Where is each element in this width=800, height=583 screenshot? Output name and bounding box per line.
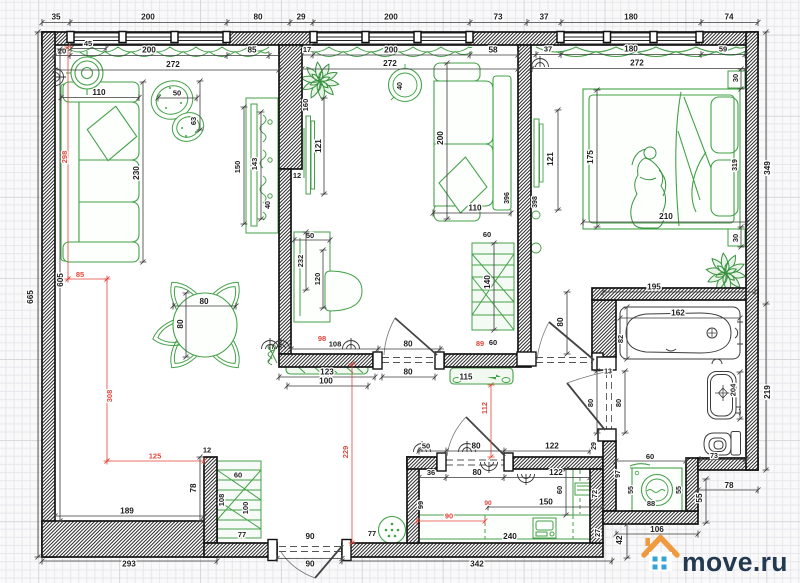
svg-text:108: 108	[329, 340, 342, 349]
svg-text:230: 230	[132, 166, 141, 180]
svg-text:298: 298	[60, 151, 69, 164]
svg-text:342: 342	[470, 560, 484, 569]
svg-text:80: 80	[403, 340, 413, 349]
svg-text:121: 121	[546, 152, 555, 166]
svg-text:80: 80	[176, 319, 185, 329]
svg-text:85: 85	[247, 46, 257, 55]
svg-text:55: 55	[628, 486, 635, 494]
svg-text:272: 272	[630, 59, 644, 68]
svg-text:115: 115	[460, 373, 473, 382]
svg-text:219: 219	[763, 385, 772, 399]
svg-text:98: 98	[318, 334, 326, 343]
svg-text:106: 106	[650, 525, 664, 534]
svg-text:272: 272	[166, 60, 180, 69]
svg-text:112: 112	[480, 402, 489, 414]
svg-text:123: 123	[320, 368, 334, 377]
svg-text:229: 229	[341, 446, 350, 459]
svg-text:189: 189	[120, 507, 134, 516]
svg-text:27: 27	[595, 529, 602, 537]
svg-text:121: 121	[314, 139, 323, 153]
svg-text:29: 29	[296, 13, 306, 22]
svg-text:120: 120	[313, 273, 322, 286]
svg-text:100: 100	[241, 502, 250, 515]
svg-text:58: 58	[488, 46, 498, 55]
svg-text:605: 605	[56, 273, 65, 287]
svg-text:110: 110	[468, 204, 482, 213]
svg-text:12: 12	[293, 171, 301, 180]
svg-text:308: 308	[105, 390, 114, 403]
svg-text:398: 398	[532, 196, 539, 208]
svg-text:80: 80	[253, 13, 263, 22]
svg-text:40: 40	[397, 82, 404, 90]
svg-text:17: 17	[303, 45, 311, 54]
svg-text:88: 88	[647, 499, 655, 508]
svg-text:200: 200	[141, 13, 155, 22]
svg-text:180: 180	[624, 45, 638, 54]
svg-text:89: 89	[476, 339, 484, 348]
svg-text:50: 50	[173, 89, 181, 98]
svg-text:60: 60	[483, 230, 491, 239]
svg-text:150: 150	[539, 498, 553, 507]
svg-text:82: 82	[616, 335, 625, 343]
svg-text:50: 50	[422, 442, 430, 451]
svg-text:80: 80	[471, 442, 481, 451]
svg-text:125: 125	[149, 452, 162, 461]
svg-text:180: 180	[624, 13, 638, 22]
svg-text:122: 122	[549, 468, 563, 477]
svg-text:99: 99	[416, 501, 425, 509]
svg-text:97: 97	[615, 470, 622, 478]
svg-text:293: 293	[122, 560, 136, 569]
svg-text:122: 122	[545, 442, 559, 451]
svg-text:29: 29	[591, 442, 598, 450]
svg-text:74: 74	[724, 13, 734, 22]
svg-text:140: 140	[483, 275, 492, 289]
svg-text:200: 200	[384, 46, 398, 55]
svg-text:272: 272	[383, 59, 397, 68]
svg-text:200: 200	[436, 131, 445, 145]
svg-text:80: 80	[586, 399, 595, 407]
svg-text:77: 77	[368, 529, 376, 538]
svg-text:396: 396	[504, 192, 511, 204]
svg-text:108: 108	[217, 494, 226, 507]
svg-text:20: 20	[58, 47, 66, 56]
svg-text:162: 162	[671, 309, 685, 318]
svg-text:204: 204	[729, 383, 738, 396]
svg-text:45: 45	[84, 39, 92, 48]
svg-text:200: 200	[384, 13, 398, 22]
svg-text:319: 319	[732, 159, 739, 171]
svg-text:40: 40	[265, 201, 272, 209]
svg-text:80: 80	[614, 399, 623, 407]
svg-text:90: 90	[445, 512, 453, 521]
svg-text:72: 72	[590, 490, 599, 498]
svg-text:60: 60	[234, 471, 242, 480]
svg-text:232: 232	[296, 255, 305, 268]
svg-text:80: 80	[556, 317, 565, 327]
svg-text:73: 73	[710, 453, 718, 460]
svg-text:78: 78	[724, 481, 734, 490]
svg-text:42: 42	[615, 535, 624, 545]
svg-text:55: 55	[676, 486, 683, 494]
svg-text:349: 349	[763, 161, 772, 175]
svg-text:100: 100	[319, 377, 333, 386]
svg-text:90: 90	[305, 560, 315, 569]
svg-text:90: 90	[305, 532, 315, 541]
svg-text:13: 13	[604, 369, 612, 376]
svg-text:77: 77	[238, 530, 246, 539]
svg-text:73: 73	[493, 13, 503, 22]
svg-text:143: 143	[250, 158, 259, 171]
svg-text:90: 90	[484, 500, 492, 507]
svg-text:60: 60	[555, 486, 564, 494]
svg-text:63: 63	[189, 117, 198, 125]
svg-text:55: 55	[695, 493, 704, 503]
svg-text:37: 37	[544, 45, 552, 54]
svg-text:30: 30	[731, 74, 740, 82]
svg-text:30: 30	[731, 234, 740, 242]
svg-text:110: 110	[92, 88, 106, 97]
svg-text:80: 80	[199, 297, 209, 306]
svg-text:80: 80	[403, 368, 413, 377]
svg-text:200: 200	[142, 46, 156, 55]
svg-text:85: 85	[76, 270, 84, 279]
svg-text:210: 210	[659, 212, 673, 221]
svg-text:195: 195	[647, 283, 661, 292]
svg-text:60: 60	[646, 452, 654, 461]
svg-text:665: 665	[26, 290, 35, 304]
svg-text:175: 175	[586, 150, 595, 164]
svg-text:37: 37	[539, 13, 549, 22]
svg-text:150: 150	[233, 161, 242, 174]
svg-text:12: 12	[203, 446, 211, 455]
svg-text:36: 36	[427, 468, 435, 477]
svg-text:35: 35	[51, 13, 61, 22]
svg-text:80: 80	[472, 468, 482, 477]
svg-text:60: 60	[489, 338, 497, 347]
svg-text:78: 78	[189, 483, 198, 493]
svg-text:move.ru: move.ru	[682, 547, 788, 577]
svg-text:59: 59	[719, 45, 727, 54]
svg-text:160: 160	[301, 99, 310, 112]
svg-text:240: 240	[503, 532, 517, 541]
